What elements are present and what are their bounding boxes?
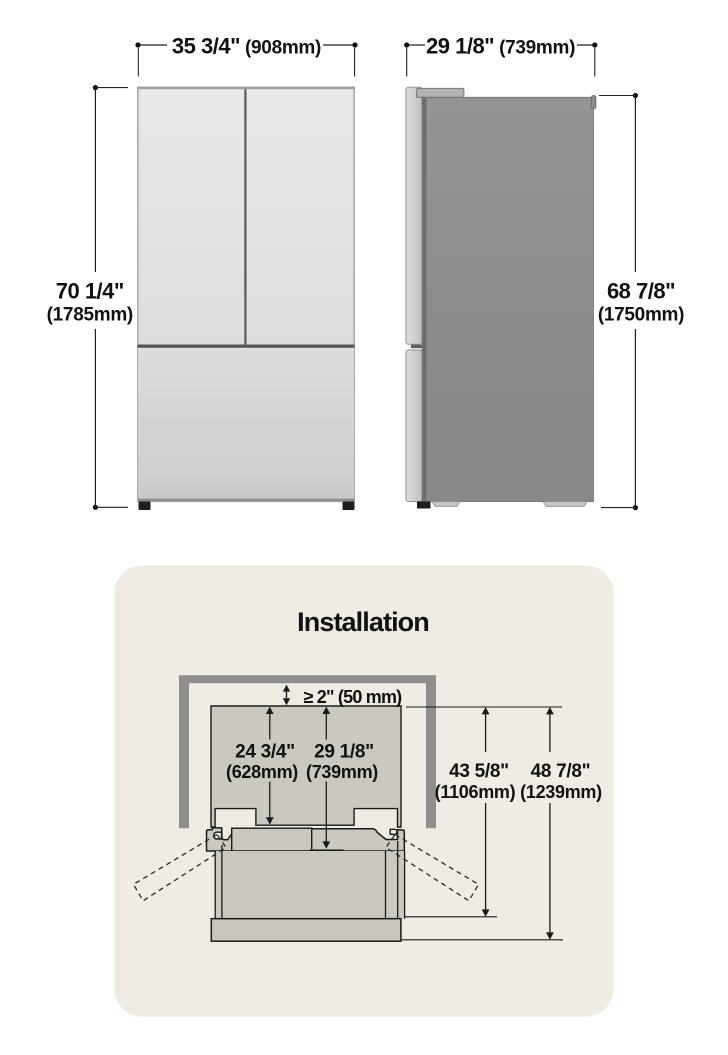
svg-text:≥ 2" (50 mm): ≥ 2" (50 mm) (304, 687, 403, 707)
svg-text:29 1/8" (739mm): 29 1/8" (739mm) (426, 34, 575, 59)
svg-text:24 3/4": 24 3/4" (235, 742, 295, 763)
svg-text:43 5/8": 43 5/8" (449, 761, 509, 782)
svg-text:(1750mm): (1750mm) (598, 305, 684, 326)
svg-text:(1785mm): (1785mm) (47, 305, 133, 326)
svg-text:(739mm): (739mm) (306, 762, 378, 782)
svg-text:29 1/8": 29 1/8" (314, 742, 374, 763)
svg-text:68 7/8": 68 7/8" (607, 279, 675, 304)
svg-text:(1106mm): (1106mm) (435, 782, 516, 802)
svg-text:48 7/8": 48 7/8" (531, 761, 591, 782)
svg-text:(1239mm): (1239mm) (520, 782, 602, 802)
svg-text:(628mm): (628mm) (226, 762, 298, 782)
svg-text:70 1/4": 70 1/4" (56, 279, 124, 304)
svg-text:35 3/4" (908mm): 35 3/4" (908mm) (172, 34, 321, 59)
svg-text:Installation: Installation (297, 607, 429, 637)
